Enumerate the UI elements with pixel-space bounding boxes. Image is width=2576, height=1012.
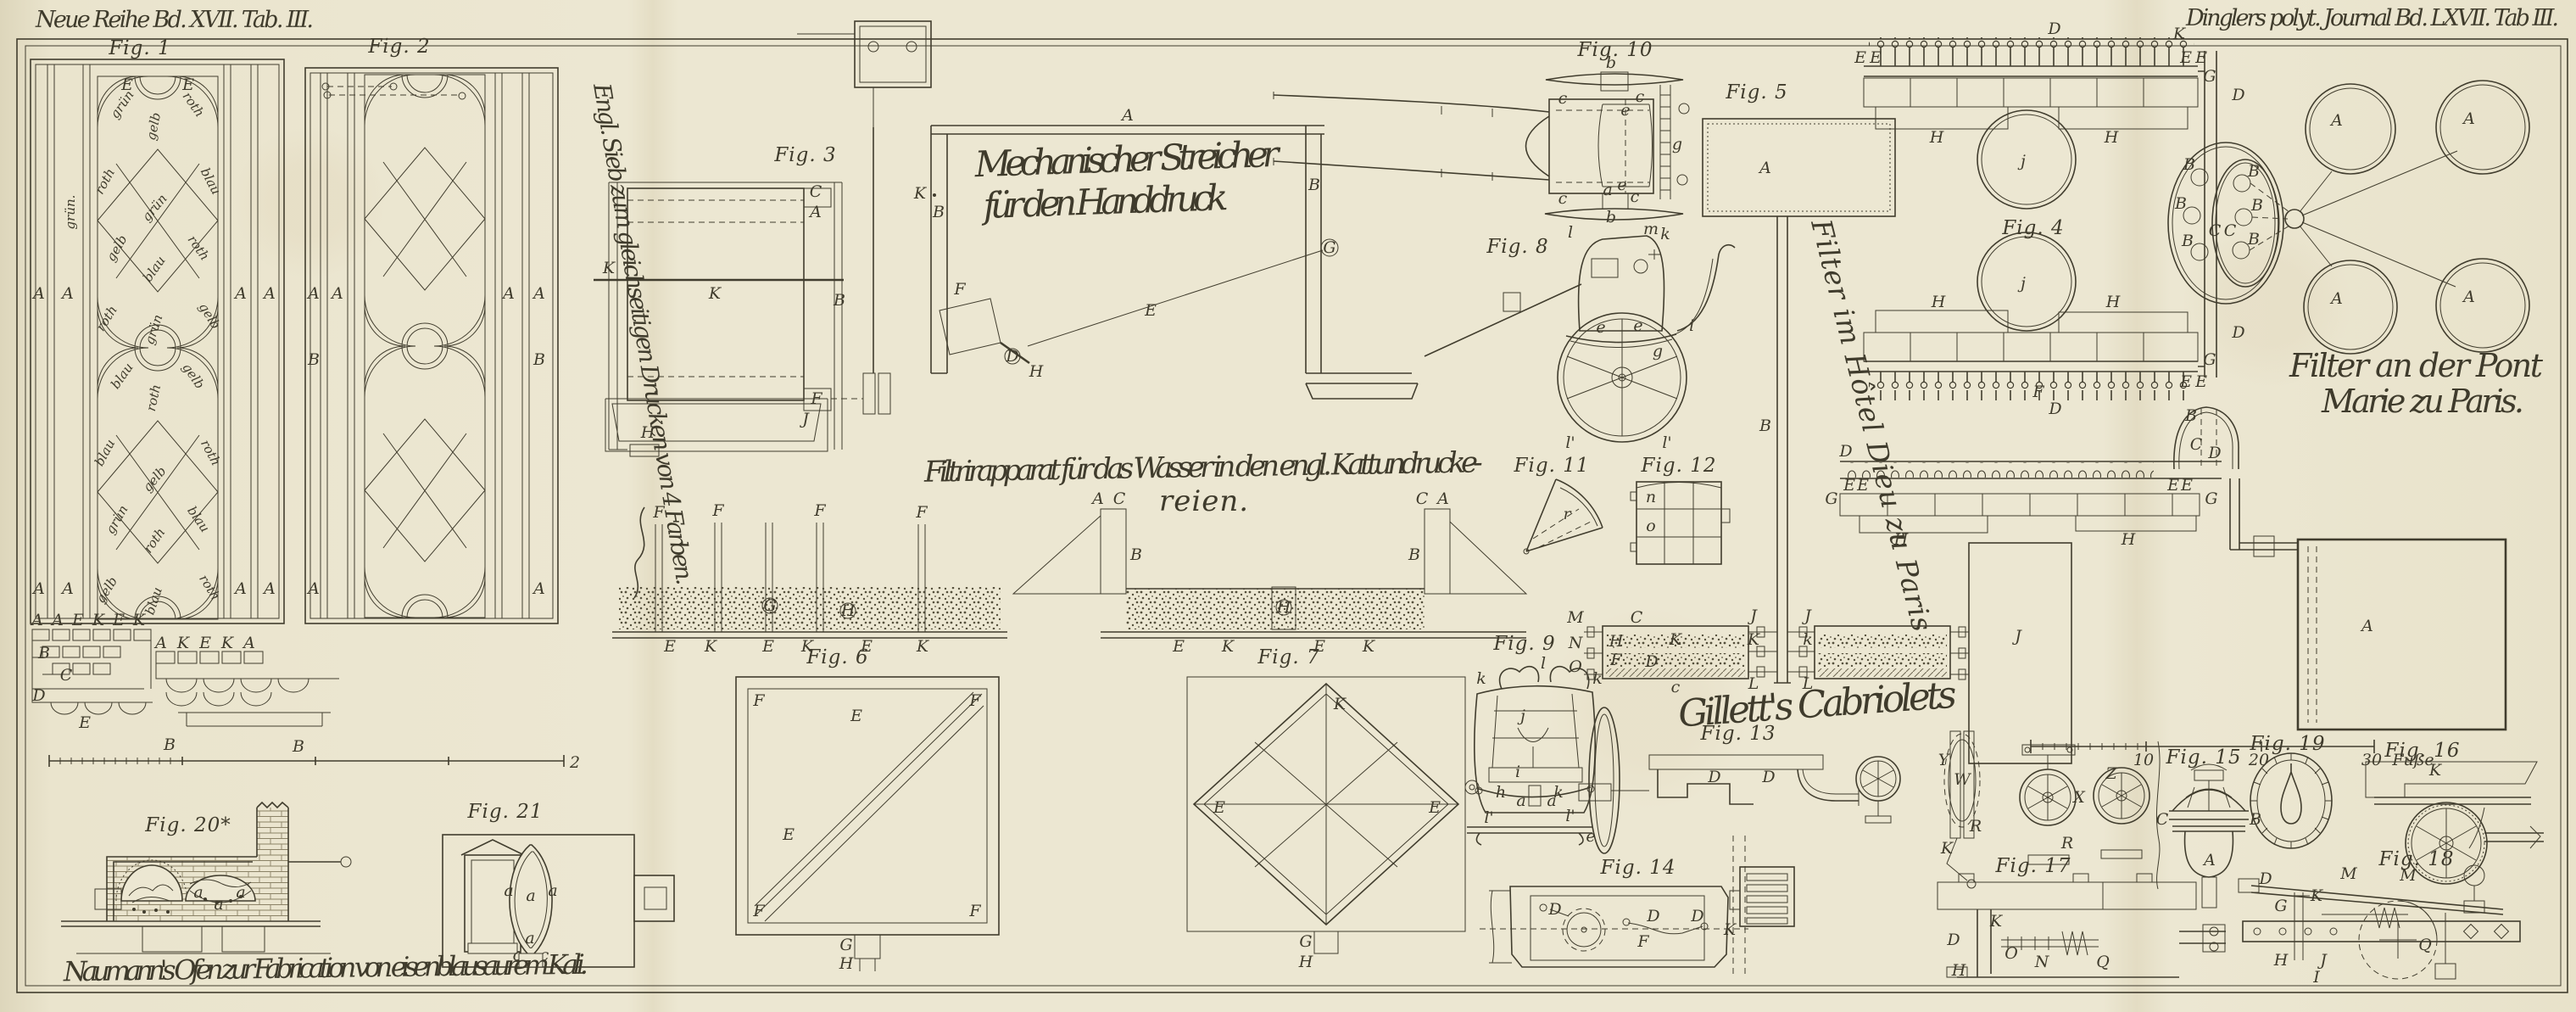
part-letter: A bbox=[2360, 617, 2373, 635]
part-letter: F bbox=[968, 691, 981, 710]
part-letter: A bbox=[330, 284, 343, 303]
part-letter: K bbox=[602, 259, 616, 277]
pont-marie-basins: A A A A Filter an der Pont Marie zu Pari… bbox=[2289, 81, 2544, 420]
color-word: roth bbox=[92, 165, 118, 197]
color-word: gelb bbox=[179, 360, 208, 391]
part-letter: J bbox=[1747, 607, 1758, 625]
part-letter: A bbox=[242, 634, 255, 652]
fig16-label: Fig. 16 bbox=[2384, 740, 2461, 762]
part-letter: B bbox=[163, 735, 176, 754]
color-word: gelb bbox=[103, 232, 131, 264]
part-letter: A bbox=[262, 579, 276, 598]
part-letter: j bbox=[2017, 152, 2026, 171]
part-letter: B bbox=[1129, 545, 1142, 564]
part-letter: A bbox=[1436, 489, 1449, 508]
part-letter: E bbox=[2194, 372, 2207, 391]
part-letter: F bbox=[752, 902, 765, 920]
part-letter: B bbox=[2174, 194, 2187, 213]
part-letter: H bbox=[1893, 530, 1909, 549]
part-letter: G bbox=[1323, 238, 1335, 257]
fig2-sieve-blocks: A K E K A B B bbox=[153, 634, 339, 756]
part-letter: A bbox=[501, 284, 515, 303]
color-word: grün bbox=[139, 191, 170, 224]
part-letter: l' bbox=[1565, 433, 1575, 452]
part-letter: g bbox=[1672, 135, 1682, 154]
fig14-mechanism-plan: Fig. 14 D D D F K bbox=[1480, 836, 1794, 976]
part-letter: l bbox=[1568, 223, 1573, 242]
part-letter: B bbox=[292, 737, 304, 756]
part-letter: K bbox=[1723, 920, 1737, 939]
fig12-label: Fig. 12 bbox=[1641, 455, 1717, 477]
part-letter: B bbox=[833, 291, 845, 310]
intake-bell: B C bbox=[2174, 406, 2239, 469]
fig15-press-detail: Fig. 15 C B A bbox=[2156, 746, 2261, 908]
part-letter: E bbox=[71, 611, 84, 629]
part-letter: D bbox=[1946, 931, 1960, 949]
journal-title: Dinglers polyt. Journal Bd. LXVII. Tab I… bbox=[2185, 5, 2561, 31]
part-letter: C bbox=[2224, 221, 2237, 240]
part-letter: a bbox=[526, 886, 535, 905]
part-letter: M bbox=[1566, 608, 1584, 627]
part-letter: D bbox=[2258, 869, 2272, 888]
part-letter: e bbox=[1620, 101, 1630, 120]
fig2-pattern: Fig. 2 A A A A B B A A bbox=[305, 36, 558, 623]
part-letter: J bbox=[2011, 627, 2022, 646]
part-letter: E bbox=[78, 713, 91, 732]
part-letter: D bbox=[2047, 20, 2060, 38]
part-letter: A bbox=[153, 634, 167, 652]
color-word: blau bbox=[198, 165, 224, 198]
part-letter: n bbox=[1646, 488, 1656, 506]
part-letter: A bbox=[532, 579, 545, 598]
scale-number: 2 bbox=[569, 753, 580, 772]
color-word: blau bbox=[142, 585, 165, 617]
part-letter: K bbox=[916, 637, 930, 656]
part-letter: g bbox=[1653, 342, 1663, 361]
part-letter: K bbox=[1221, 637, 1235, 656]
fig9-label: Fig. 9 bbox=[1492, 633, 1555, 655]
part-letter: M bbox=[2339, 864, 2357, 883]
color-word: blau bbox=[92, 437, 118, 469]
naumann-caption: Naumann's Ofen zur Fabrication von eisen… bbox=[63, 948, 589, 988]
part-letter: R bbox=[2060, 834, 2073, 853]
fig7-filter-box: Fig. 7 K E E G H bbox=[1187, 646, 1465, 971]
part-letter: l' bbox=[1484, 808, 1493, 827]
part-letter: N bbox=[1568, 634, 1584, 652]
part-letter: F bbox=[915, 503, 928, 522]
part-letter: J bbox=[1801, 607, 1812, 625]
part-letter: Q bbox=[2096, 953, 2110, 971]
part-letter: c bbox=[1558, 189, 1568, 208]
part-letter: k bbox=[1660, 225, 1670, 243]
color-word: roth bbox=[198, 437, 224, 468]
part-letter: B bbox=[2247, 230, 2260, 249]
part-letter: D bbox=[1646, 907, 1659, 925]
part-letter: H bbox=[640, 423, 655, 442]
part-letter: A bbox=[233, 579, 247, 598]
part-letter: e bbox=[1586, 827, 1595, 846]
part-letter: K bbox=[2310, 886, 2324, 905]
fig8-cabriolet-side: Fig. 8 l m k e e i g l' l' bbox=[1425, 220, 1735, 452]
part-letter: A bbox=[233, 284, 247, 303]
part-letter: R bbox=[1969, 817, 1982, 836]
part-letter: B bbox=[2184, 406, 2197, 425]
part-letter: K bbox=[92, 611, 106, 629]
fig4-filter-plan: Fig. 4 D K E E E E G D H H j j H H G E E… bbox=[1854, 20, 2245, 418]
part-letter: D bbox=[2231, 323, 2244, 342]
part-letter: E bbox=[2179, 372, 2192, 391]
color-word: gelb bbox=[92, 574, 120, 606]
streicher-caption-1: Mechanischer Streicher bbox=[973, 133, 1282, 186]
fig7-label: Fig. 7 bbox=[1257, 646, 1319, 668]
part-letter: m bbox=[1643, 220, 1659, 238]
color-word: roth bbox=[140, 525, 168, 556]
part-letter: K bbox=[1362, 637, 1376, 656]
part-letter: B bbox=[932, 203, 945, 221]
color-word: gelb bbox=[196, 300, 224, 332]
part-letter: E bbox=[2179, 48, 2192, 67]
part-letter: E bbox=[1856, 476, 1869, 495]
part-letter: F bbox=[1609, 651, 1622, 669]
color-word: blau bbox=[184, 503, 213, 534]
part-letter: A bbox=[808, 203, 822, 221]
part-letter: E bbox=[1869, 48, 1882, 67]
fig13-axle-detail: Fig. 13 D D bbox=[1579, 723, 1859, 806]
part-letter: c bbox=[1631, 187, 1640, 206]
part-letter: o bbox=[1646, 517, 1655, 535]
part-letter: K bbox=[2172, 25, 2187, 43]
part-letter: A bbox=[30, 611, 43, 629]
part-letter: C bbox=[2190, 435, 2203, 454]
part-letter: D bbox=[1761, 768, 1775, 786]
part-letter: E bbox=[112, 611, 125, 629]
part-letter: F bbox=[652, 503, 665, 522]
part-letter: A bbox=[1120, 106, 1134, 125]
part-letter: E bbox=[1843, 476, 1855, 495]
part-letter: a bbox=[1547, 791, 1556, 810]
pont-marie-caption-1: Filter an der Pont bbox=[2289, 347, 2544, 384]
part-letter: K bbox=[220, 634, 235, 652]
part-letter: E bbox=[2180, 476, 2193, 495]
part-letter: G bbox=[763, 596, 776, 615]
part-letter: A bbox=[31, 579, 45, 598]
sieve-caption: Engl. Sieb zum gleichseitigen Drucken vo… bbox=[588, 81, 700, 598]
part-letter: H bbox=[1276, 598, 1291, 617]
part-letter: F bbox=[1636, 932, 1649, 951]
part-letter: i bbox=[1689, 316, 1694, 335]
fig21-furnace-front: Fig. 21 a a a a c c bbox=[443, 801, 674, 967]
part-letter: K bbox=[2428, 761, 2443, 780]
part-letter: a bbox=[548, 881, 557, 900]
part-letter: b bbox=[1606, 53, 1616, 72]
fig14-label: Fig. 14 bbox=[1600, 857, 1676, 879]
part-letter: H bbox=[1609, 632, 1624, 651]
fig1-sieve-blocks: A A E K E K B C D E bbox=[30, 611, 153, 732]
fig19-dial: Fig. 19 bbox=[2250, 733, 2332, 848]
part-letter: i bbox=[1515, 763, 1520, 781]
part-letter: A bbox=[31, 284, 45, 303]
scale-number: 30 bbox=[2361, 751, 2382, 769]
part-letter: D bbox=[1644, 652, 1658, 671]
fig11-label: Fig. 11 bbox=[1514, 455, 1590, 477]
part-letter: C bbox=[1631, 608, 1643, 627]
part-letter: B bbox=[307, 350, 320, 369]
part-letter: F bbox=[813, 501, 826, 520]
part-letter: A bbox=[60, 579, 74, 598]
part-letter: J bbox=[2317, 951, 2328, 970]
part-letter: B bbox=[2181, 232, 2194, 250]
part-letter: c bbox=[1636, 87, 1645, 106]
fig11-bracket: Fig. 11 r bbox=[1514, 455, 1603, 554]
part-letter: D bbox=[1690, 907, 1703, 925]
part-letter: A bbox=[306, 284, 320, 303]
part-letter: A bbox=[60, 284, 74, 303]
part-letter: E bbox=[1144, 301, 1157, 320]
filter-caption-2: reien. bbox=[1159, 484, 1249, 518]
part-letter: A bbox=[2462, 288, 2475, 306]
part-letter: l' bbox=[1565, 807, 1575, 825]
part-letter: H bbox=[1931, 293, 1946, 311]
fig6-label: Fig. 6 bbox=[806, 646, 868, 668]
part-letter: C bbox=[1113, 489, 1126, 508]
part-letter: A bbox=[1090, 489, 1104, 508]
part-letter: K bbox=[1989, 912, 2004, 931]
part-letter: H bbox=[2105, 293, 2121, 311]
part-letter: l bbox=[1541, 654, 1546, 673]
part-letter: H bbox=[839, 954, 854, 973]
part-letter: B bbox=[1759, 417, 1771, 435]
part-letter: A bbox=[532, 284, 545, 303]
part-letter: K bbox=[176, 634, 191, 652]
part-letter: K bbox=[1669, 630, 1683, 649]
color-word: gelb bbox=[140, 463, 170, 495]
part-letter: K bbox=[1747, 630, 1761, 649]
part-letter: A bbox=[1758, 159, 1771, 177]
part-letter: J bbox=[799, 410, 810, 428]
part-letter: a bbox=[504, 881, 513, 900]
mechanical-spreader: A K B B G Mechanischer Streicher für den… bbox=[913, 106, 1418, 399]
fig20-label: Fig. 20* bbox=[144, 814, 231, 836]
plate-artwork: Neue Reihe Bd. XVII. Tab. III. Dinglers … bbox=[0, 0, 2576, 1012]
part-letter: a bbox=[193, 883, 203, 902]
part-letter: j bbox=[2017, 274, 2026, 293]
part-letter: e bbox=[1617, 176, 1626, 194]
part-letter: H bbox=[1929, 128, 1944, 147]
part-letter: K bbox=[913, 184, 928, 203]
filter-caption-1: Filtrirapparat für das Wasser in den eng… bbox=[923, 445, 1485, 489]
pont-marie-caption-2: Marie zu Paris. bbox=[2321, 383, 2525, 420]
part-letter: C bbox=[60, 666, 73, 685]
fig21-label: Fig. 21 bbox=[467, 801, 544, 823]
color-word: roth bbox=[196, 572, 223, 603]
part-letter: B bbox=[1408, 545, 1420, 564]
part-letter: D bbox=[1707, 768, 1720, 786]
part-letter: l' bbox=[1662, 433, 1671, 452]
scale-bar-left: 2 bbox=[49, 753, 580, 772]
part-letter: G bbox=[2205, 489, 2217, 508]
part-letter: E bbox=[1854, 48, 1866, 67]
part-letter: G bbox=[1825, 489, 1837, 508]
fig20-furnace-section: Fig. 20* a a a bbox=[61, 802, 351, 953]
part-letter: E bbox=[782, 825, 795, 844]
part-letter: A bbox=[306, 579, 320, 598]
part-letter: D bbox=[2231, 86, 2244, 104]
part-letter: Q bbox=[2418, 936, 2432, 954]
color-word: roth bbox=[185, 232, 213, 263]
part-letter: E bbox=[1213, 798, 1225, 817]
water-tank: A bbox=[2298, 540, 2506, 730]
part-letter: A bbox=[2329, 111, 2343, 130]
part-letter: k bbox=[1476, 669, 1486, 688]
part-letter: A bbox=[2202, 851, 2216, 869]
part-letter: E bbox=[761, 637, 774, 656]
part-letter: e bbox=[1596, 318, 1605, 337]
part-letter: I bbox=[2312, 968, 2320, 987]
part-letter: E bbox=[1172, 637, 1185, 656]
part-letter: F bbox=[752, 691, 765, 710]
fig12-cabinet: Fig. 12 n o bbox=[1631, 455, 1730, 564]
part-letter: b bbox=[1606, 208, 1616, 226]
part-letter: E bbox=[663, 637, 676, 656]
part-letter: a bbox=[1603, 181, 1612, 199]
part-letter: O bbox=[1569, 657, 1582, 676]
part-letter: E bbox=[198, 634, 211, 652]
part-letter: H bbox=[1298, 953, 1313, 971]
part-letter: D bbox=[1547, 900, 1561, 919]
part-letter: X bbox=[2071, 788, 2086, 807]
part-letter: A bbox=[50, 611, 64, 629]
fig13-label: Fig. 13 bbox=[1700, 723, 1776, 745]
fig5-tank: Fig. 5 A bbox=[1703, 81, 1895, 216]
part-letter: H bbox=[2273, 951, 2289, 970]
part-letter: D bbox=[31, 686, 45, 705]
part-letter: a bbox=[236, 883, 245, 902]
hotel-dieu-caption: Filter im Hôtel Dieu zu Paris bbox=[1804, 215, 1939, 636]
color-word: grün bbox=[103, 502, 131, 536]
fig8-label: Fig. 8 bbox=[1486, 236, 1548, 258]
part-letter: C bbox=[2156, 810, 2169, 829]
part-letter: E bbox=[850, 707, 862, 725]
part-letter: F bbox=[711, 501, 724, 520]
part-letter: H bbox=[1951, 961, 1966, 980]
color-word: roth bbox=[143, 383, 164, 412]
fig9-cabriolet-rear: Fig. 9 k k l j i h k a a l' l' e bbox=[1465, 633, 1620, 853]
fig19-label: Fig. 19 bbox=[2250, 733, 2326, 755]
part-letter: a bbox=[214, 895, 223, 914]
color-word: blau bbox=[140, 253, 169, 284]
part-letter: B bbox=[2250, 196, 2263, 215]
engraving-plate: Neue Reihe Bd. XVII. Tab. III. Dinglers … bbox=[0, 0, 2576, 1012]
plate-series-title: Neue Reihe Bd. XVII. Tab. III. bbox=[35, 7, 315, 33]
color-word-vertical: grün. bbox=[63, 195, 78, 230]
part-letter: B bbox=[1308, 176, 1320, 194]
part-letter: B bbox=[2247, 162, 2260, 181]
fig4-label: Fig. 4 bbox=[2001, 217, 2064, 239]
part-letter: Z bbox=[2105, 764, 2117, 783]
part-letter: h bbox=[1496, 783, 1506, 802]
part-letter: K bbox=[704, 637, 718, 656]
fig18-label: Fig. 18 bbox=[2378, 848, 2455, 870]
part-letter: C bbox=[810, 182, 822, 201]
fig17-axle-box: Fig. 17 K N O Q D H bbox=[1938, 855, 2226, 980]
color-word: gelb bbox=[143, 111, 164, 142]
sieve-caption-text: Engl. Sieb zum gleichseitigen Drucken vo… bbox=[588, 81, 700, 588]
scale-number: 10 bbox=[2133, 751, 2154, 769]
fig10-cabriolet-top: Fig. 10 b c c e g e c c a b bbox=[1274, 39, 1689, 226]
part-letter: C bbox=[2209, 221, 2222, 240]
part-letter: B bbox=[2183, 155, 2195, 174]
part-letter: N bbox=[2034, 953, 2050, 971]
streicher-caption-2: für den Handdruck bbox=[980, 176, 1230, 226]
part-letter: F bbox=[968, 902, 981, 920]
fig3-label: Fig. 3 bbox=[773, 144, 836, 166]
part-letter: G bbox=[839, 936, 852, 954]
fig5-label: Fig. 5 bbox=[1725, 81, 1787, 103]
fig6-filter-box: Fig. 6 F F F F E E G H bbox=[736, 646, 999, 973]
part-letter: A bbox=[2329, 289, 2343, 308]
part-letter: D bbox=[1838, 442, 1852, 461]
part-letter: D bbox=[2048, 400, 2061, 418]
fig1-label: Fig. 1 bbox=[108, 37, 170, 59]
part-letter: H bbox=[2121, 530, 2136, 549]
part-letter: K bbox=[132, 611, 147, 629]
part-letter: c bbox=[1558, 89, 1568, 108]
part-letter: G bbox=[1299, 932, 1312, 951]
fig17-label: Fig. 17 bbox=[1995, 855, 2071, 877]
part-letter: K bbox=[1333, 695, 1347, 713]
part-letter: E bbox=[2194, 48, 2207, 67]
filter-apparatus: Filtrirapparat für das Wasser in den eng… bbox=[612, 445, 1526, 656]
part-letter: K bbox=[1940, 839, 1954, 858]
part-letter: k bbox=[1592, 669, 1603, 688]
fig1-pattern: Fig. 1 E E grün roth gelb roth blau grün… bbox=[31, 37, 284, 623]
part-letter: H bbox=[2104, 128, 2119, 147]
part-letter: F bbox=[2032, 383, 2044, 401]
part-letter: F bbox=[953, 280, 966, 299]
part-letter: H bbox=[1029, 362, 1044, 381]
part-letter: B bbox=[37, 644, 50, 663]
part-letter: A bbox=[262, 284, 276, 303]
part-letter: E bbox=[1428, 798, 1441, 817]
fig2-label: Fig. 2 bbox=[367, 36, 430, 58]
part-letter: G bbox=[2274, 897, 2287, 915]
part-letter: a bbox=[525, 929, 534, 948]
part-letter: j bbox=[1517, 707, 1525, 725]
part-letter: A bbox=[2462, 109, 2475, 128]
part-letter: W bbox=[1954, 770, 1971, 789]
part-letter: D bbox=[1005, 347, 1018, 366]
part-letter: C bbox=[1416, 489, 1429, 508]
part-letter: H bbox=[840, 601, 856, 620]
part-letter: k bbox=[1803, 630, 1813, 649]
part-letter: B bbox=[2249, 810, 2261, 829]
color-word: grün bbox=[142, 313, 165, 347]
part-letter: K bbox=[708, 284, 722, 303]
part-letter: D bbox=[2207, 444, 2221, 462]
part-letter: e bbox=[1633, 316, 1642, 335]
part-letter: E bbox=[2166, 476, 2179, 495]
part-letter: a bbox=[1516, 791, 1525, 810]
color-word: blau bbox=[108, 360, 137, 391]
part-letter: B bbox=[532, 350, 545, 369]
part-letter: O bbox=[2004, 944, 2018, 963]
